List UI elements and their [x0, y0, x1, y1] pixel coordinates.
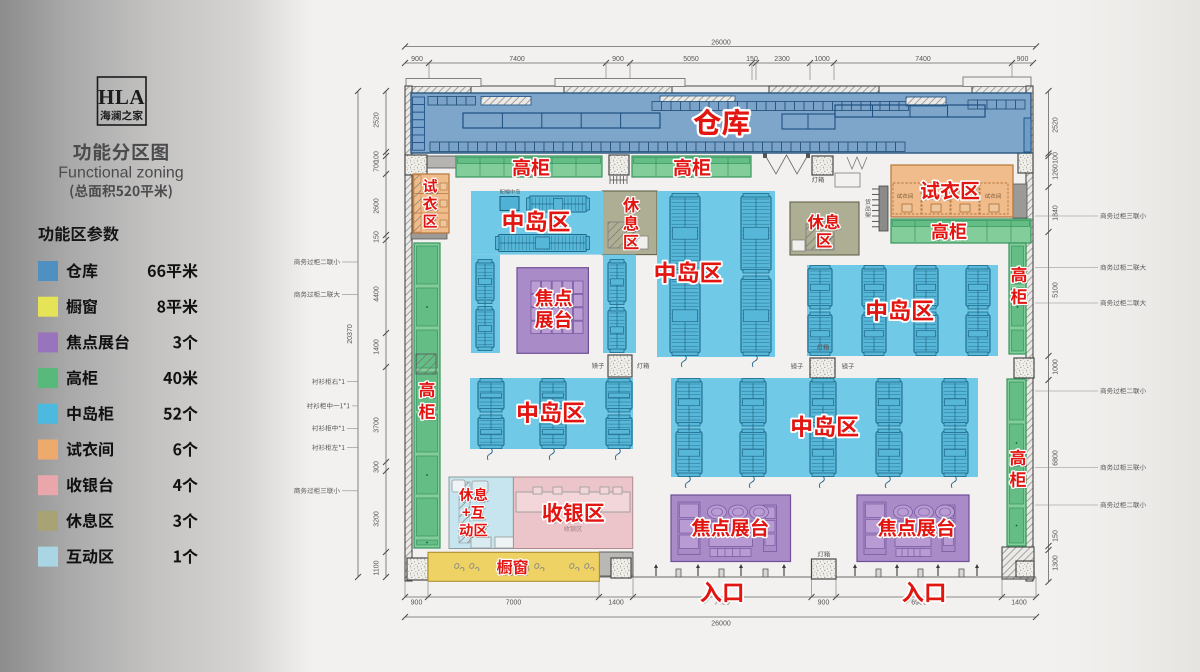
svg-text:900: 900 [1017, 56, 1029, 63]
svg-text:1260: 1260 [1053, 164, 1060, 180]
svg-text:900: 900 [818, 600, 830, 607]
svg-text:3700: 3700 [374, 417, 381, 433]
svg-text:2520: 2520 [1053, 117, 1060, 133]
svg-text:1400: 1400 [1011, 600, 1027, 607]
svg-text:150: 150 [746, 56, 758, 63]
svg-text:5100: 5100 [1053, 282, 1060, 298]
svg-text:2300: 2300 [774, 56, 790, 63]
svg-text:26000: 26000 [711, 39, 731, 46]
svg-text:2600: 2600 [374, 198, 381, 214]
svg-text:7400: 7400 [509, 56, 525, 63]
svg-text:1000: 1000 [1053, 359, 1060, 375]
svg-text:Functional zoning: Functional zoning [58, 165, 183, 182]
svg-text:300: 300 [374, 461, 381, 473]
svg-text:20370: 20370 [347, 324, 354, 344]
svg-text:5050: 5050 [683, 56, 699, 63]
svg-text:900: 900 [411, 600, 423, 607]
svg-text:1400: 1400 [608, 600, 624, 607]
svg-text:900: 900 [411, 56, 423, 63]
svg-text:150: 150 [374, 231, 381, 243]
svg-text:1840: 1840 [1053, 205, 1060, 221]
svg-text:HLA: HLA [98, 85, 145, 109]
svg-text:3200: 3200 [374, 511, 381, 527]
svg-text:6800: 6800 [1053, 450, 1060, 466]
svg-text:26000: 26000 [711, 621, 731, 628]
svg-text:900: 900 [612, 56, 624, 63]
svg-text:2520: 2520 [374, 112, 381, 128]
svg-text:7000: 7000 [506, 600, 522, 607]
svg-text:700: 700 [374, 160, 381, 172]
svg-text:1300: 1300 [1053, 555, 1060, 571]
svg-text:150: 150 [1053, 530, 1060, 542]
svg-text:4400: 4400 [374, 286, 381, 302]
svg-text:1000: 1000 [814, 56, 830, 63]
svg-text:1400: 1400 [374, 339, 381, 355]
svg-text:100: 100 [1053, 152, 1060, 164]
svg-text:1100: 1100 [374, 560, 381, 575]
svg-text:7400: 7400 [915, 56, 931, 63]
